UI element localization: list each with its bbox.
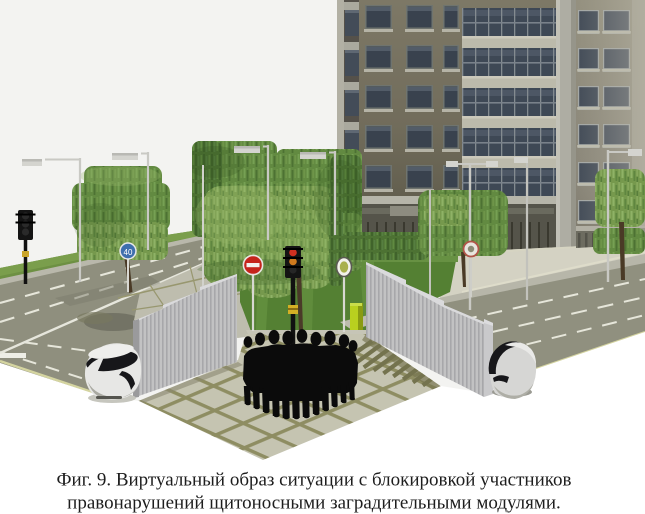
svg-text:40: 40	[124, 248, 133, 257]
svg-text:Фиг. 9. Виртуальный образ ситу: Фиг. 9. Виртуальный образ ситуации с бло…	[57, 470, 572, 491]
svg-text:правонарушений щитоносными заг: правонарушений щитоносными заградительны…	[67, 493, 561, 514]
